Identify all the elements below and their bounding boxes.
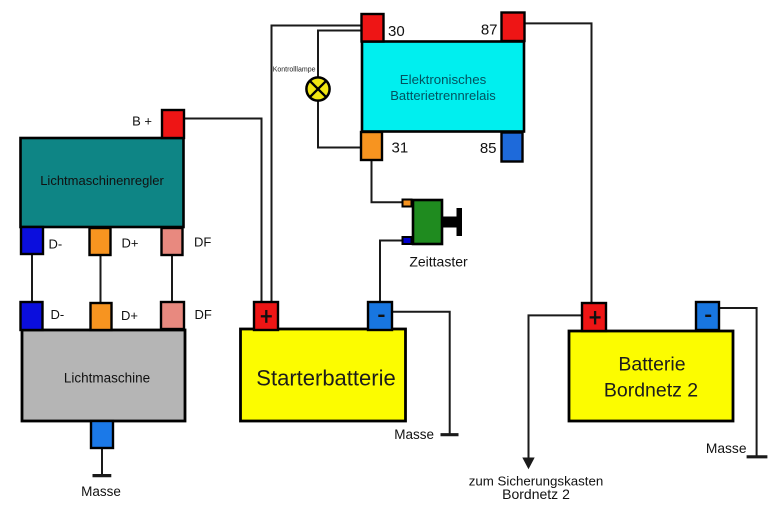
svg-text:Elektronisches: Elektronisches	[400, 72, 487, 87]
svg-text:B +: B +	[132, 114, 152, 129]
svg-text:31: 31	[392, 140, 409, 157]
svg-text:Batterie: Batterie	[618, 354, 685, 376]
svg-text:D-: D-	[51, 307, 65, 322]
svg-text:Batterietrennrelais: Batterietrennrelais	[390, 88, 496, 103]
svg-text:Bordnetz 2: Bordnetz 2	[502, 486, 570, 502]
svg-text:D+: D+	[121, 308, 138, 323]
svg-text:DF: DF	[194, 234, 211, 249]
svg-text:Kontrolllampe: Kontrolllampe	[273, 67, 316, 74]
svg-text:30: 30	[388, 23, 405, 40]
svg-text:87: 87	[481, 22, 498, 39]
svg-text:85: 85	[480, 140, 497, 157]
svg-text:D-: D-	[49, 237, 63, 252]
svg-text:Zeittaster: Zeittaster	[409, 254, 468, 270]
svg-text:Masse: Masse	[81, 484, 121, 499]
svg-text:Lichtmaschinenregler: Lichtmaschinenregler	[40, 173, 164, 188]
svg-text:Masse: Masse	[394, 427, 434, 442]
svg-text:D+: D+	[122, 236, 139, 251]
svg-text:DF: DF	[195, 307, 212, 322]
svg-text:Lichtmaschine: Lichtmaschine	[64, 371, 150, 386]
svg-text:Bordnetz 2: Bordnetz 2	[604, 380, 698, 402]
svg-text:Masse: Masse	[706, 441, 747, 456]
svg-text:Starterbatterie: Starterbatterie	[256, 366, 395, 391]
